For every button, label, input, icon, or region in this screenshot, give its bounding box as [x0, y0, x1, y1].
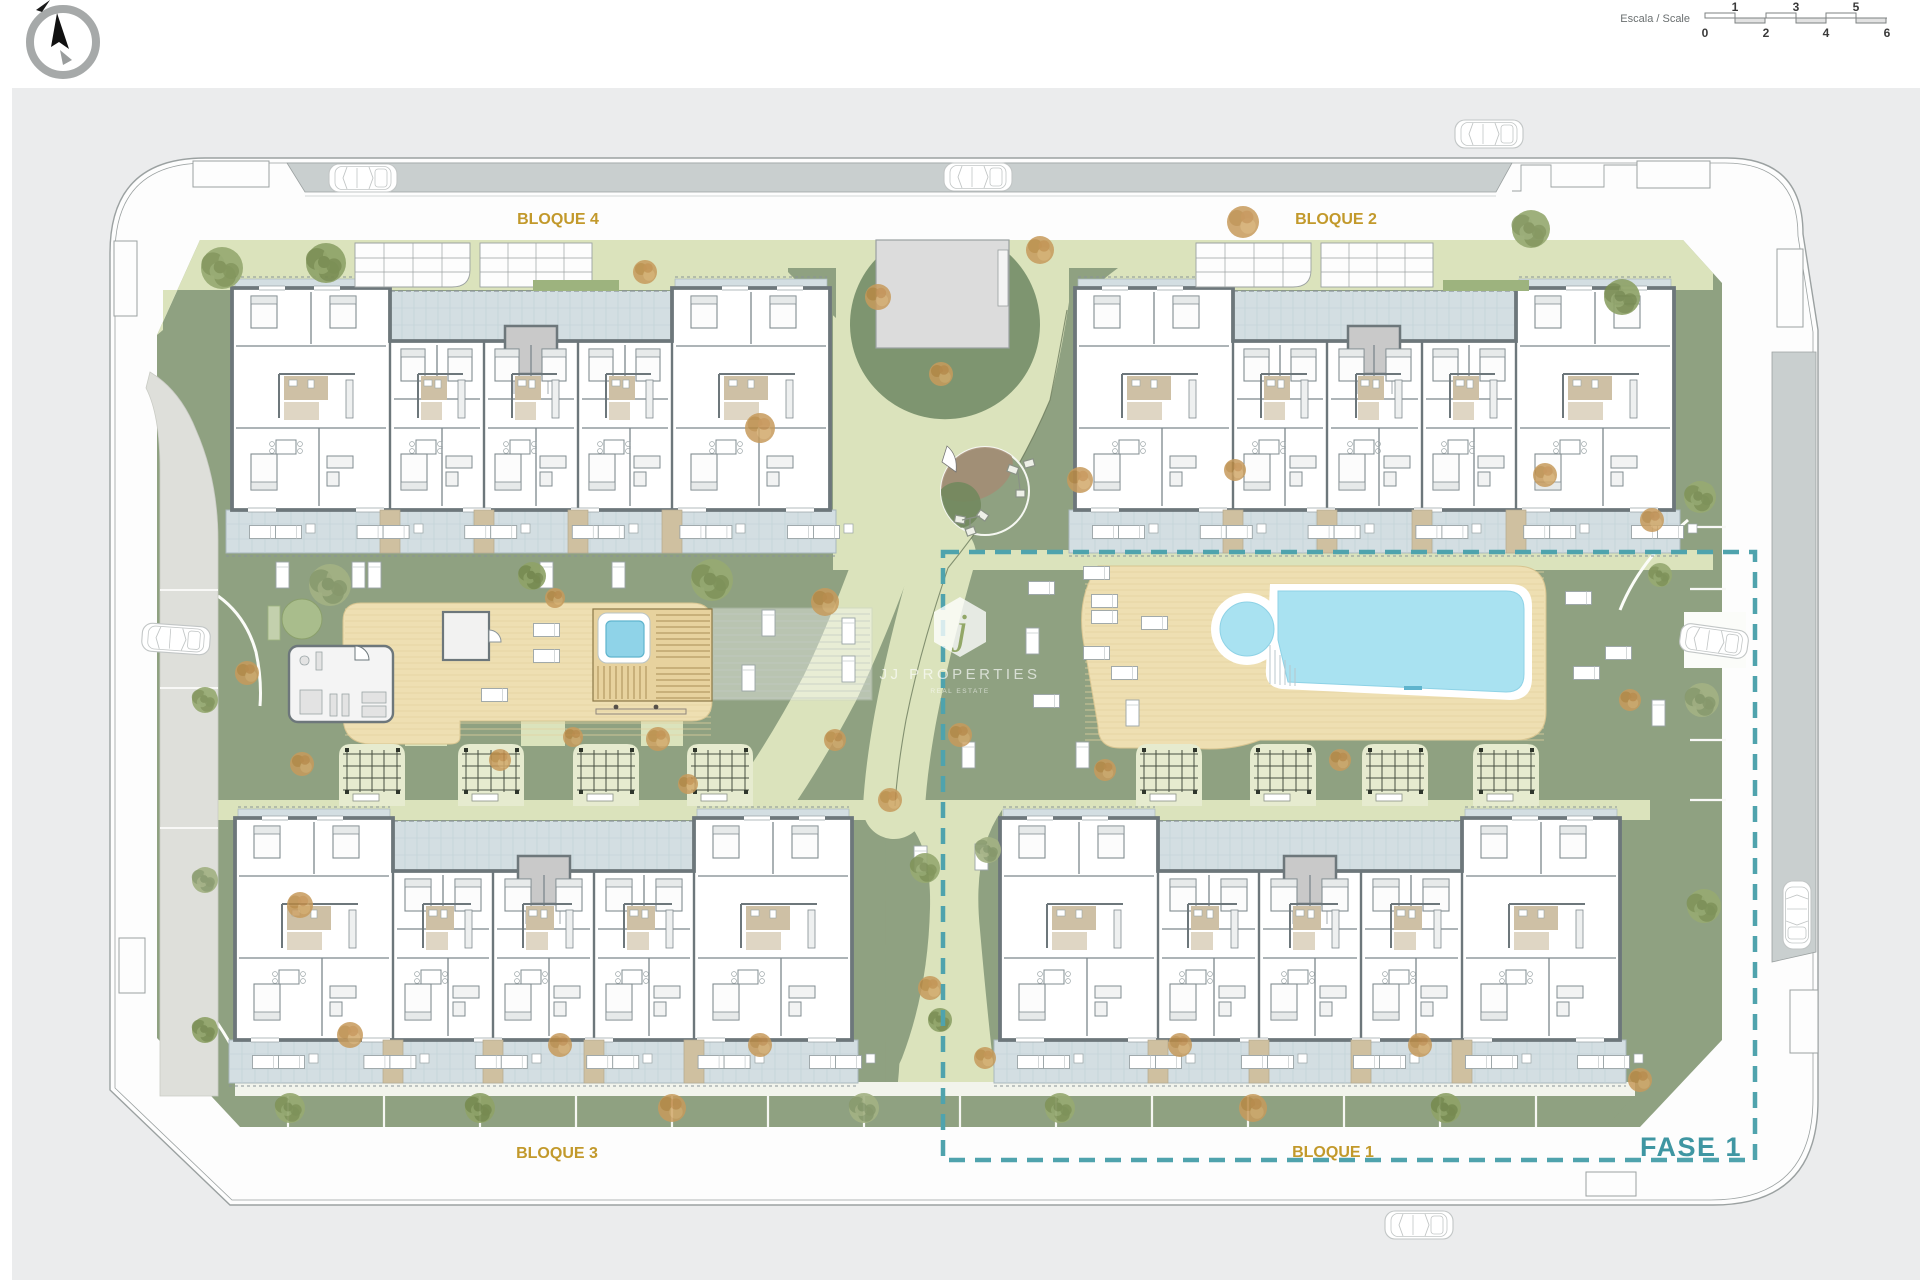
- svg-text:BLOQUE 1: BLOQUE 1: [1292, 1144, 1374, 1161]
- svg-text:4: 4: [1823, 26, 1830, 40]
- svg-text:BLOQUE 4: BLOQUE 4: [517, 211, 599, 228]
- svg-text:6: 6: [1884, 26, 1891, 40]
- svg-text:REAL ESTATE: REAL ESTATE: [930, 688, 989, 695]
- svg-text:FASE 1: FASE 1: [1640, 1132, 1742, 1162]
- svg-text:JJ PROPERTIES: JJ PROPERTIES: [879, 666, 1040, 683]
- svg-text:0: 0: [1702, 26, 1709, 40]
- svg-text:BLOQUE 3: BLOQUE 3: [516, 1145, 598, 1162]
- svg-text:1: 1: [1732, 0, 1739, 14]
- svg-text:BLOQUE 2: BLOQUE 2: [1295, 211, 1377, 228]
- svg-text:2: 2: [1763, 26, 1770, 40]
- svg-text:5: 5: [1853, 0, 1860, 14]
- svg-text:Escala / Scale: Escala / Scale: [1620, 13, 1690, 25]
- svg-text:3: 3: [1793, 0, 1800, 14]
